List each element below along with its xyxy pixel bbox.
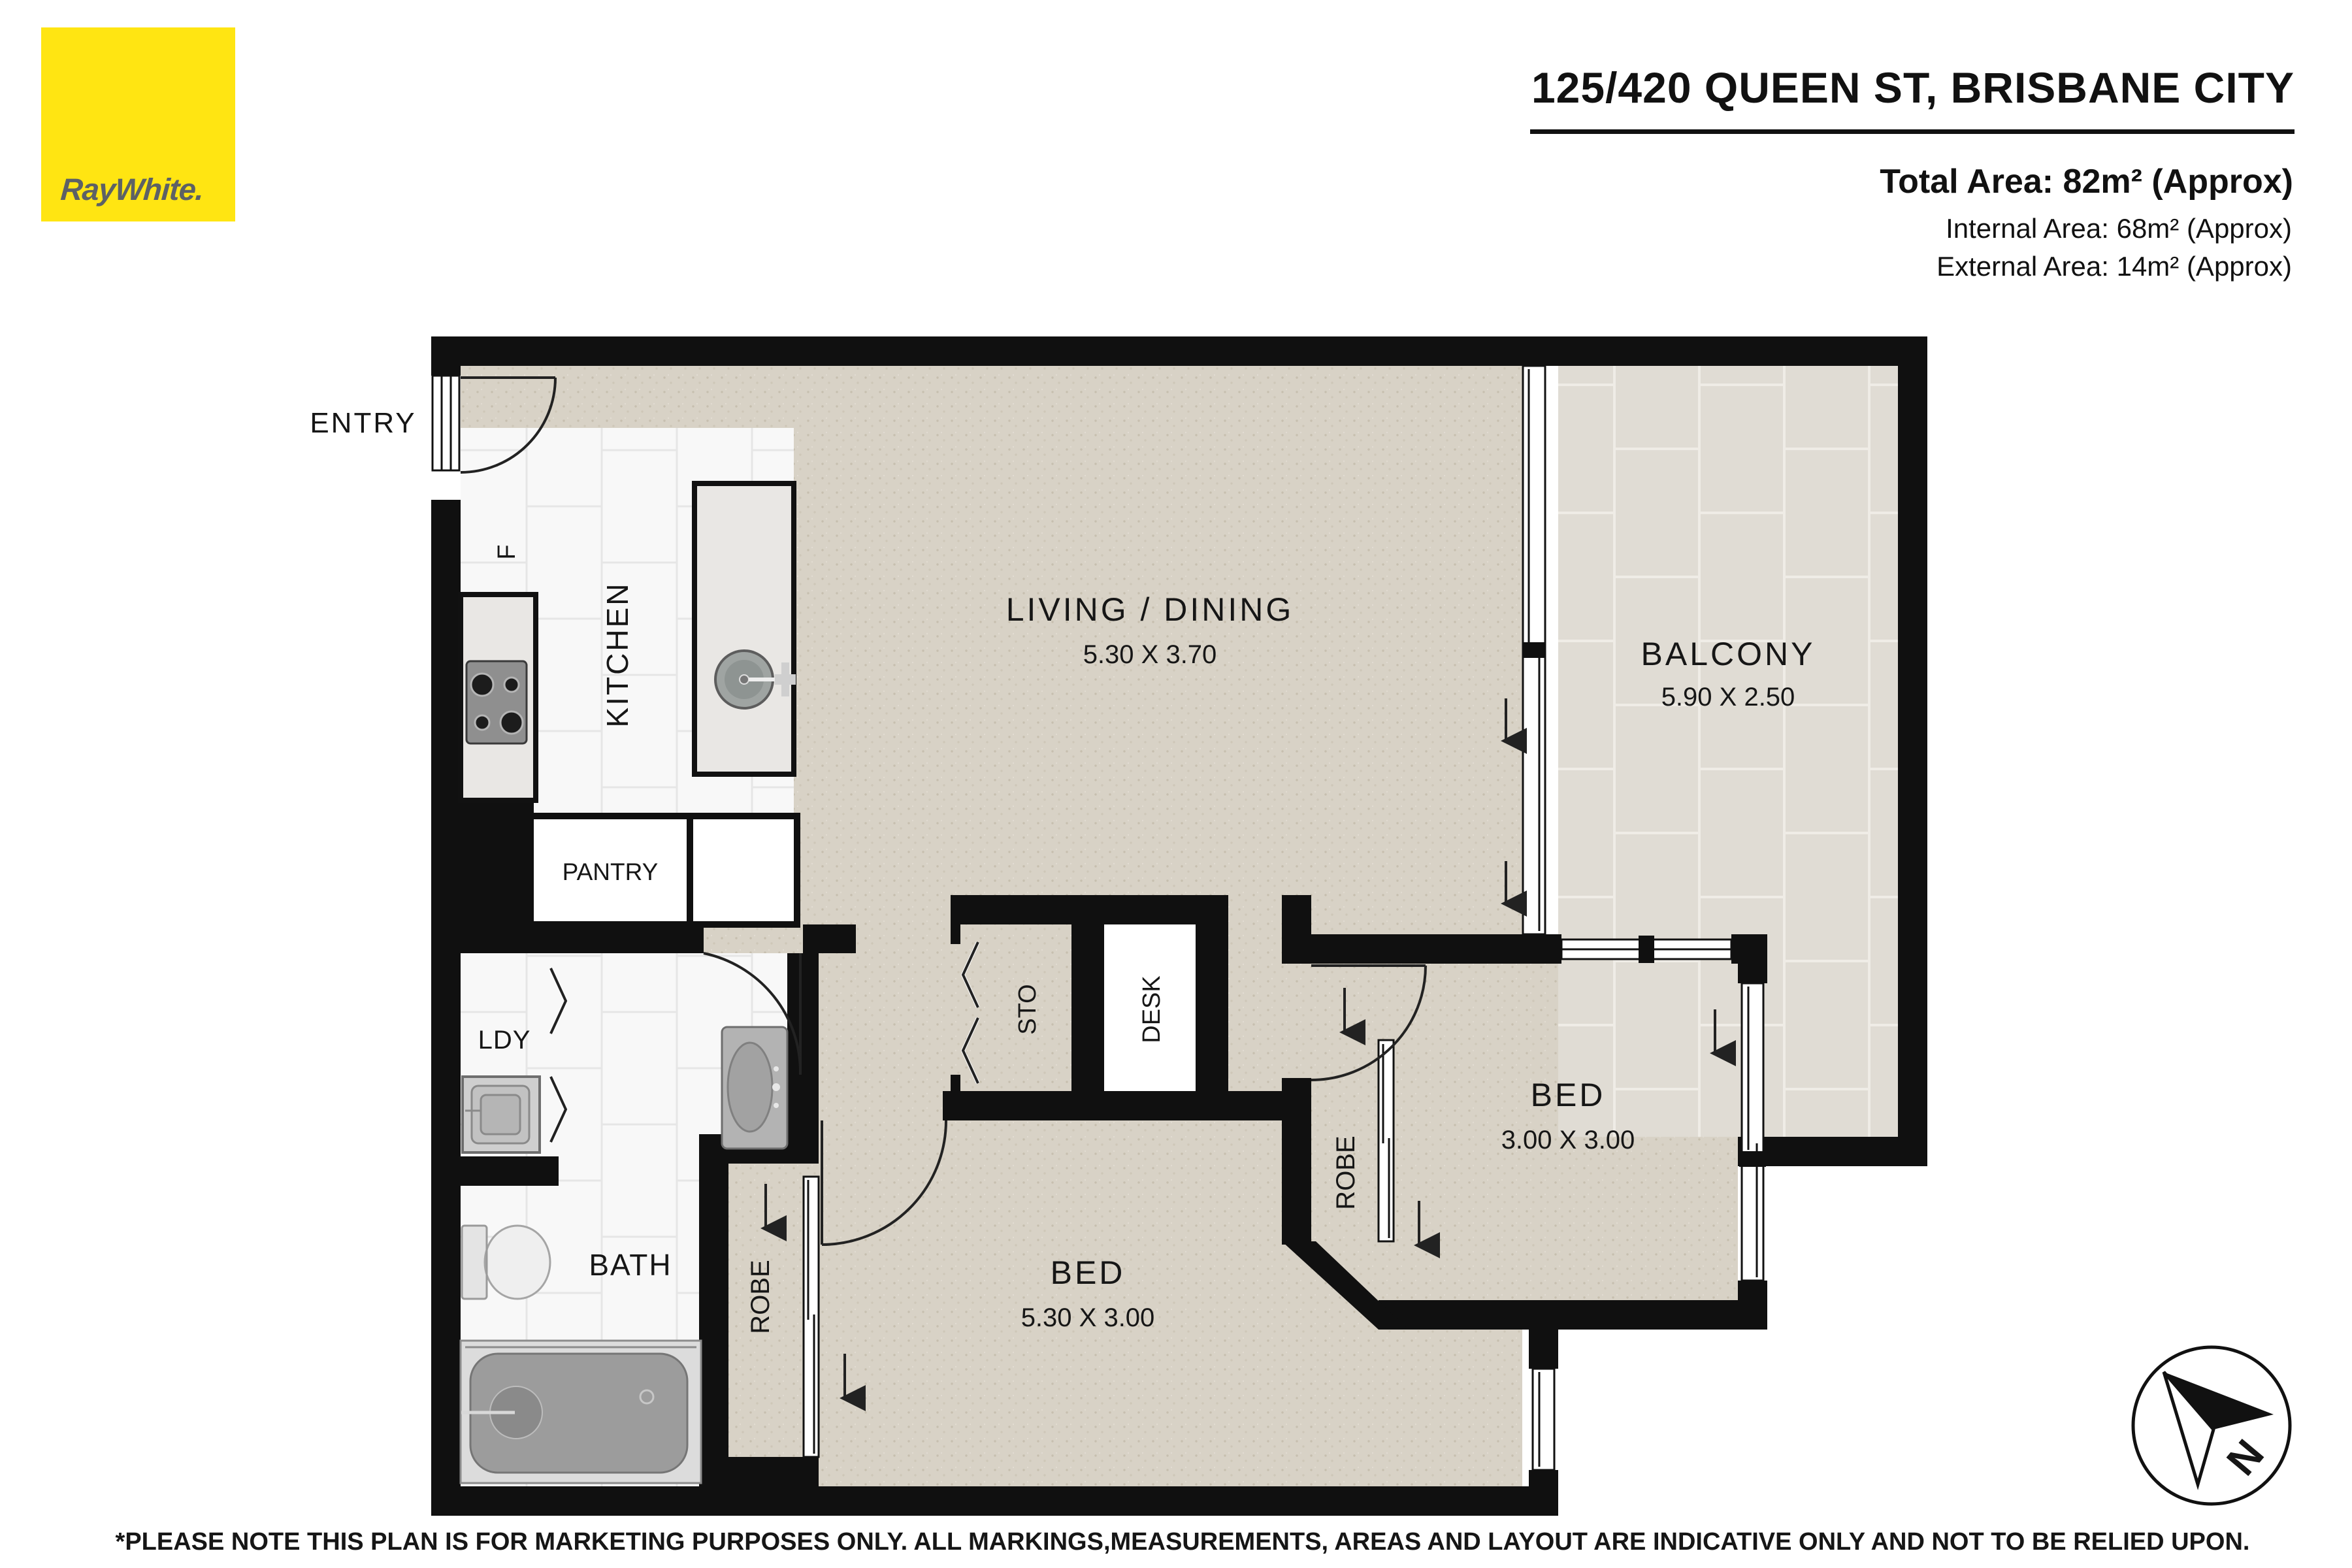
floor-plan: N ENTRY F KITCHEN PANTRY LIVING / DINING… xyxy=(0,0,2352,1568)
living-label: LIVING / DINING xyxy=(1006,591,1294,628)
living-dim: 5.30 X 3.70 xyxy=(1083,640,1217,669)
balcony-floor xyxy=(1558,366,1898,1137)
bath-label: BATH xyxy=(589,1248,672,1282)
robe1-label: ROBE xyxy=(746,1260,775,1333)
bed2-dim: 3.00 X 3.00 xyxy=(1501,1126,1635,1154)
compass-icon: N xyxy=(2133,1347,2290,1504)
island-bench xyxy=(694,483,794,774)
bed1-dim: 5.30 X 3.00 xyxy=(1021,1303,1155,1332)
ldy-label: LDY xyxy=(478,1026,531,1054)
toilet-icon xyxy=(462,1226,550,1299)
washing-machine-icon xyxy=(463,1077,540,1152)
bed1-label: BED xyxy=(1051,1254,1126,1291)
page: RayWhite. 125/420 QUEEN ST, BRISBANE CIT… xyxy=(0,0,2352,1568)
sto-label: STO xyxy=(1014,984,1041,1034)
robe2-label: ROBE xyxy=(1331,1135,1360,1209)
entry-label: ENTRY xyxy=(310,407,416,439)
fridge-label: F xyxy=(493,544,521,559)
bathtub-icon xyxy=(461,1341,701,1483)
pantry-cabinet-2 xyxy=(693,819,794,921)
disclaimer: *PLEASE NOTE THIS PLAN IS FOR MARKETING … xyxy=(116,1528,2250,1556)
bed2-label: BED xyxy=(1531,1077,1606,1113)
desk-label: DESK xyxy=(1138,975,1166,1043)
vanity-icon xyxy=(722,1027,787,1149)
kitchen-label: KITCHEN xyxy=(600,582,634,728)
pantry-label: PANTRY xyxy=(563,858,659,885)
balcony-label: BALCONY xyxy=(1641,636,1816,672)
balcony-dim: 5.90 X 2.50 xyxy=(1661,683,1795,711)
